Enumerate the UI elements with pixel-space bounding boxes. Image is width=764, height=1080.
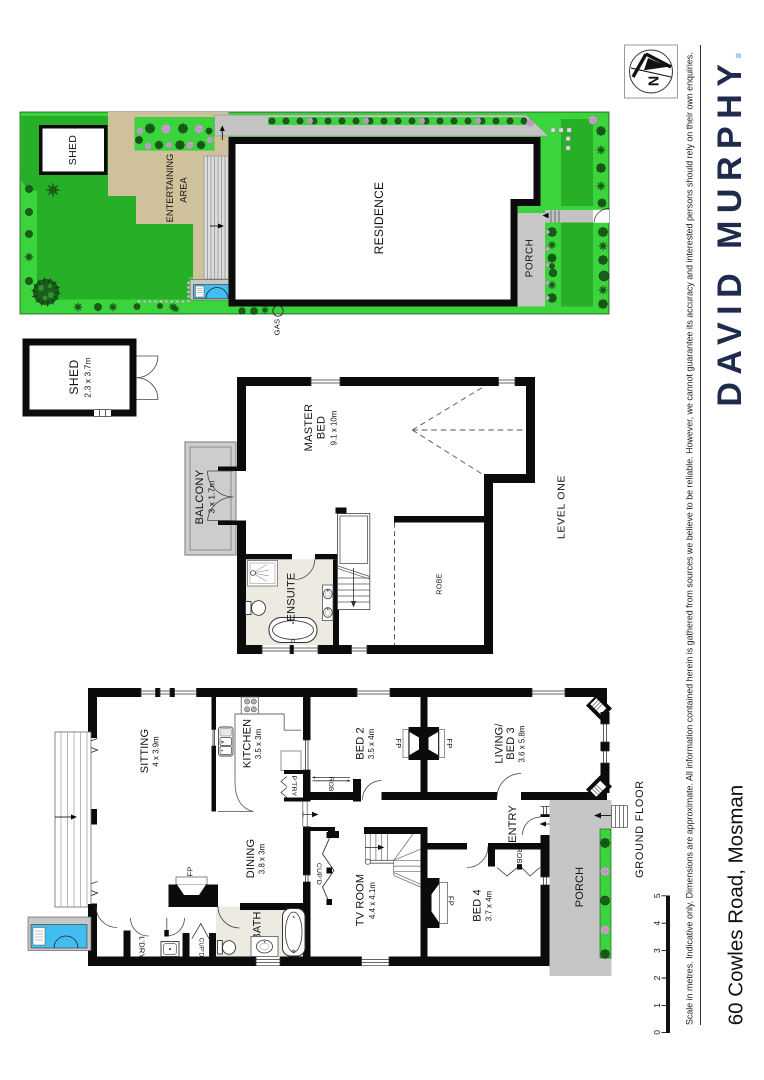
- svg-text:ROBE: ROBE: [327, 777, 334, 797]
- svg-text:4.4 x 4.1m: 4.4 x 4.1m: [368, 882, 377, 919]
- svg-text:FP: FP: [447, 896, 456, 906]
- svg-text:2.3 x 3.7m: 2.3 x 3.7m: [83, 357, 93, 397]
- svg-text:ENSUITE: ENSUITE: [286, 573, 298, 622]
- svg-text:1: 1: [652, 1003, 662, 1008]
- svg-text:AREA: AREA: [179, 177, 189, 203]
- svg-text:ROBE: ROBE: [515, 847, 522, 868]
- svg-text:4 x 3.9m: 4 x 3.9m: [152, 736, 161, 766]
- svg-text:DAVID MURPHY.: DAVID MURPHY.: [711, 43, 749, 406]
- svg-text:BED 2: BED 2: [355, 727, 367, 760]
- svg-text:ROBE: ROBE: [435, 573, 444, 595]
- svg-text:LEVEL ONE: LEVEL ONE: [556, 475, 568, 539]
- svg-text:SHED: SHED: [67, 359, 81, 394]
- svg-text:BED 3: BED 3: [505, 727, 517, 760]
- svg-text:PORCH: PORCH: [525, 239, 536, 278]
- svg-text:ENTRY: ENTRY: [507, 805, 519, 843]
- svg-text:LIVING/: LIVING/: [494, 723, 506, 764]
- svg-text:TV ROOM: TV ROOM: [355, 874, 367, 926]
- svg-text:N: N: [647, 76, 663, 86]
- svg-text:9.1 x 10m: 9.1 x 10m: [330, 411, 339, 446]
- svg-text:2: 2: [652, 975, 662, 980]
- svg-text:DINING: DINING: [245, 839, 257, 878]
- svg-text:MASTER: MASTER: [303, 404, 315, 452]
- svg-text:Scale in metres. Indicative on: Scale in metres. Indicative only. Dimens…: [685, 52, 695, 1025]
- svg-text:RESIDENCE: RESIDENCE: [372, 182, 386, 255]
- svg-text:CUP’D: CUP’D: [198, 938, 204, 958]
- svg-text:GROUND FLOOR: GROUND FLOOR: [634, 780, 646, 878]
- svg-text:FP: FP: [394, 738, 403, 748]
- svg-text:SHED: SHED: [67, 135, 79, 165]
- svg-text:ENTERTAINING: ENTERTAINING: [165, 154, 175, 223]
- svg-text:0: 0: [652, 1030, 662, 1035]
- svg-text:3.6 x 5.8m: 3.6 x 5.8m: [518, 726, 527, 763]
- svg-text:PORCH: PORCH: [574, 867, 586, 907]
- svg-text:FP: FP: [445, 738, 454, 748]
- svg-text:3.7 x 4m: 3.7 x 4m: [485, 891, 494, 921]
- svg-text:3.5 x 3m: 3.5 x 3m: [254, 729, 263, 759]
- svg-text:3.8 x 3m: 3.8 x 3m: [258, 844, 267, 874]
- svg-text:BED: BED: [316, 416, 328, 440]
- svg-text:CUP’D: CUP’D: [315, 863, 322, 885]
- svg-text:60 Cowles Road, Mosman: 60 Cowles Road, Mosman: [725, 785, 748, 1025]
- svg-text:GAS: GAS: [273, 319, 282, 336]
- svg-text:5: 5: [652, 893, 662, 898]
- svg-text:KITCHEN: KITCHEN: [242, 719, 254, 768]
- svg-text:3.5 x 4m: 3.5 x 4m: [367, 729, 376, 759]
- svg-text:P’TRY: P’TRY: [290, 775, 297, 796]
- svg-text:FP: FP: [186, 866, 195, 876]
- svg-text:SITTING: SITTING: [139, 729, 151, 773]
- svg-text:BALCONY: BALCONY: [194, 469, 206, 524]
- svg-text:BED 4: BED 4: [472, 889, 484, 922]
- svg-text:3: 3: [652, 948, 662, 953]
- svg-text:4: 4: [652, 921, 662, 926]
- svg-text:L’DRY: L’DRY: [138, 936, 147, 959]
